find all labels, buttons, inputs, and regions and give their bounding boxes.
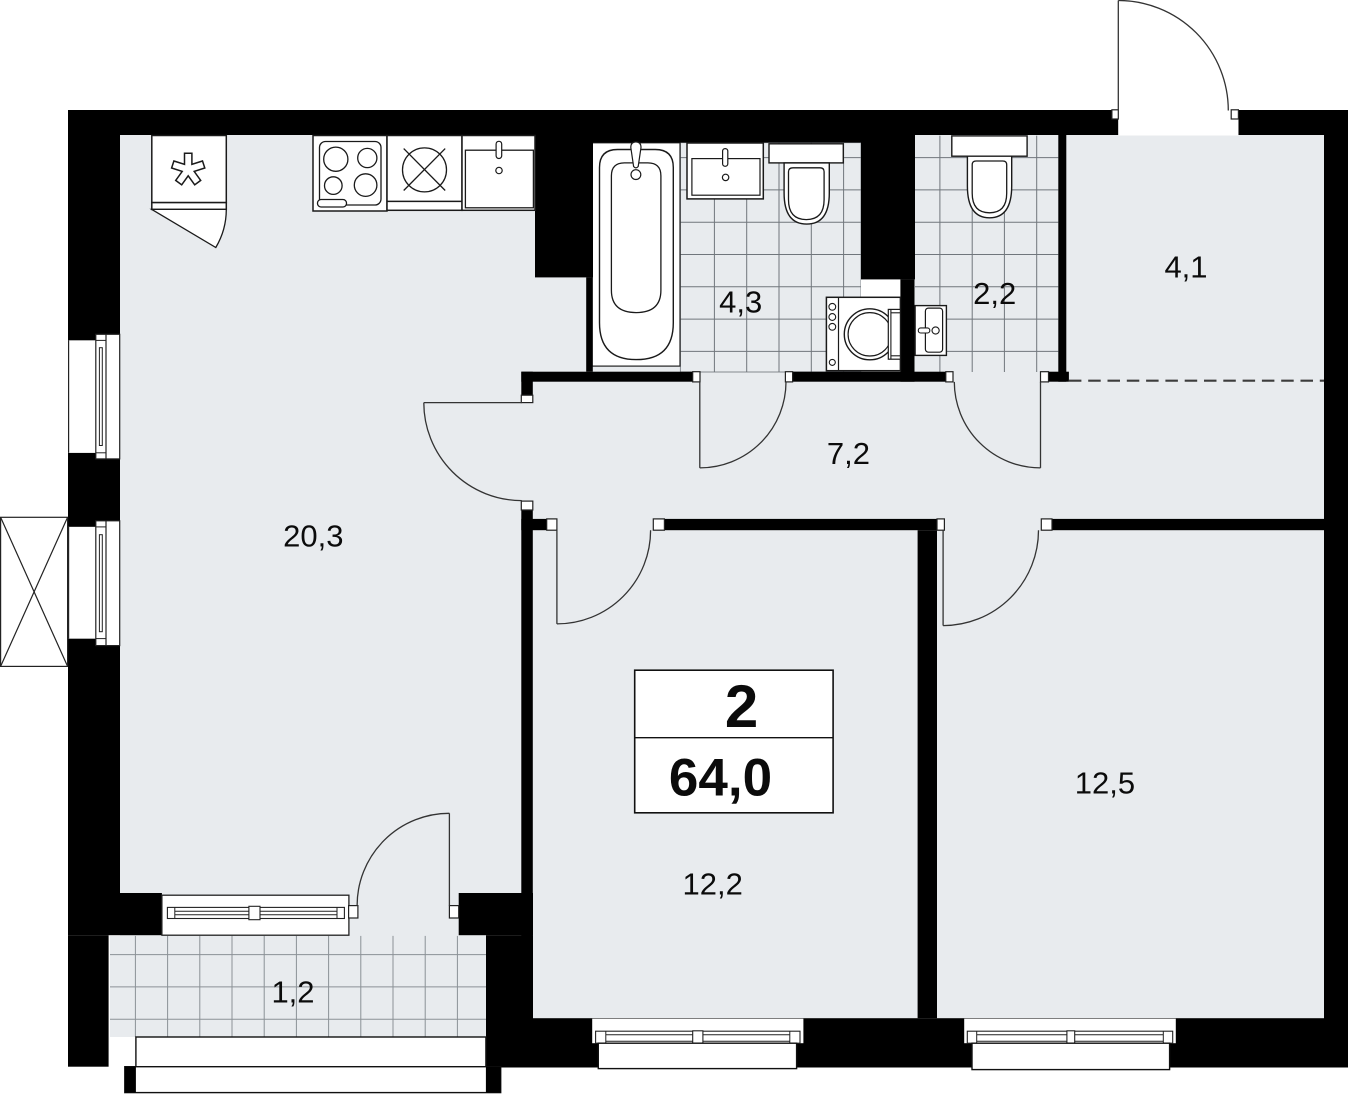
- svg-text:1,2: 1,2: [271, 975, 314, 1010]
- svg-text:2: 2: [725, 673, 758, 740]
- svg-text:20,3: 20,3: [283, 519, 343, 554]
- svg-text:4,1: 4,1: [1164, 250, 1207, 285]
- svg-text:4,3: 4,3: [719, 284, 762, 319]
- svg-text:64,0: 64,0: [669, 749, 772, 808]
- svg-text:12,2: 12,2: [683, 866, 743, 901]
- svg-text:7,2: 7,2: [827, 436, 870, 471]
- svg-text:2,2: 2,2: [973, 276, 1016, 311]
- svg-text:12,5: 12,5: [1075, 766, 1135, 801]
